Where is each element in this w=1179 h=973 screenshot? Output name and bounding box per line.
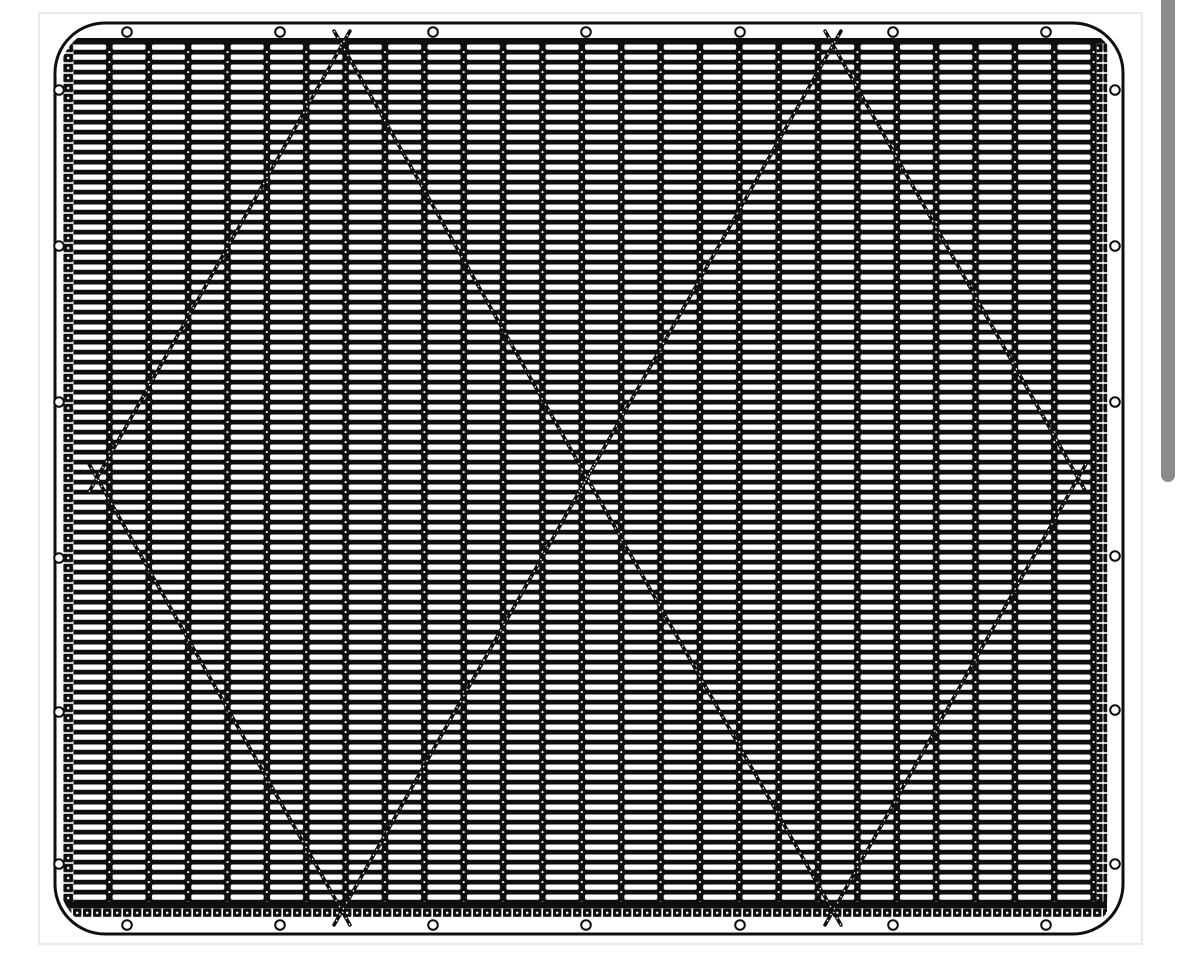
vertical-scrollbar-thumb[interactable] [1161, 0, 1175, 482]
grommet-hole [54, 85, 64, 95]
drawing-canvas [38, 12, 1143, 945]
grommet-hole [1041, 920, 1051, 930]
grommet-hole [735, 920, 745, 930]
grommet-hole [122, 27, 132, 37]
viewer-stage [0, 0, 1179, 973]
mesh-panel-technical-drawing [0, 0, 1179, 973]
grommet-hole [275, 920, 285, 930]
grommet-hole [581, 920, 591, 930]
grommet-hole [888, 27, 898, 37]
grommet-hole [1110, 85, 1120, 95]
grommet-hole [54, 859, 64, 869]
grommet-hole [1110, 705, 1120, 715]
grommet-hole [1110, 241, 1120, 251]
grommet-hole [428, 920, 438, 930]
grommet-hole [1110, 397, 1120, 407]
grommet-hole [54, 553, 64, 563]
grommet-hole [54, 397, 64, 407]
grommet-hole [581, 27, 591, 37]
grommet-hole [275, 27, 285, 37]
grommet-hole [1041, 27, 1051, 37]
grommet-hole [1110, 859, 1120, 869]
vertical-scrollbar-track[interactable] [1158, 0, 1179, 973]
grommet-hole [1110, 551, 1120, 561]
grommet-hole [428, 27, 438, 37]
grommet-hole [54, 241, 64, 251]
grommet-hole [735, 27, 745, 37]
grommet-hole [54, 707, 64, 717]
grommet-hole [122, 920, 132, 930]
grommet-hole [888, 920, 898, 930]
